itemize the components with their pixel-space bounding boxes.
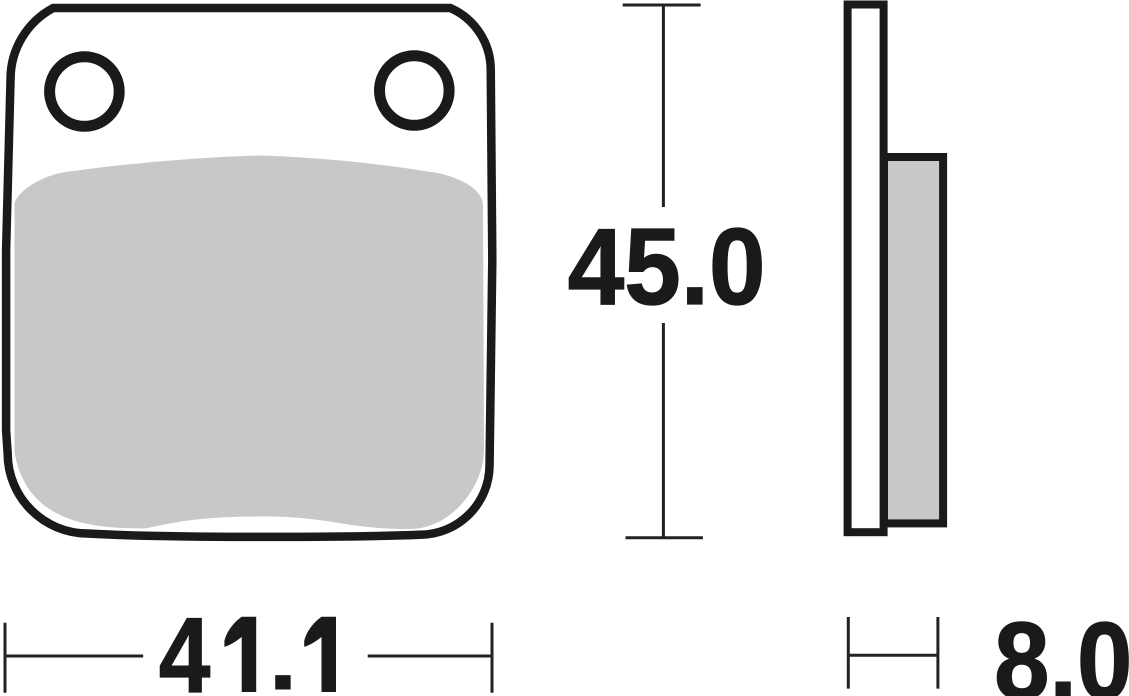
- svg-text:8.0: 8.0: [994, 600, 1129, 696]
- svg-text:4: 4: [159, 596, 211, 696]
- svg-text:45.0: 45.0: [568, 207, 766, 328]
- svg-text:.: .: [269, 609, 297, 696]
